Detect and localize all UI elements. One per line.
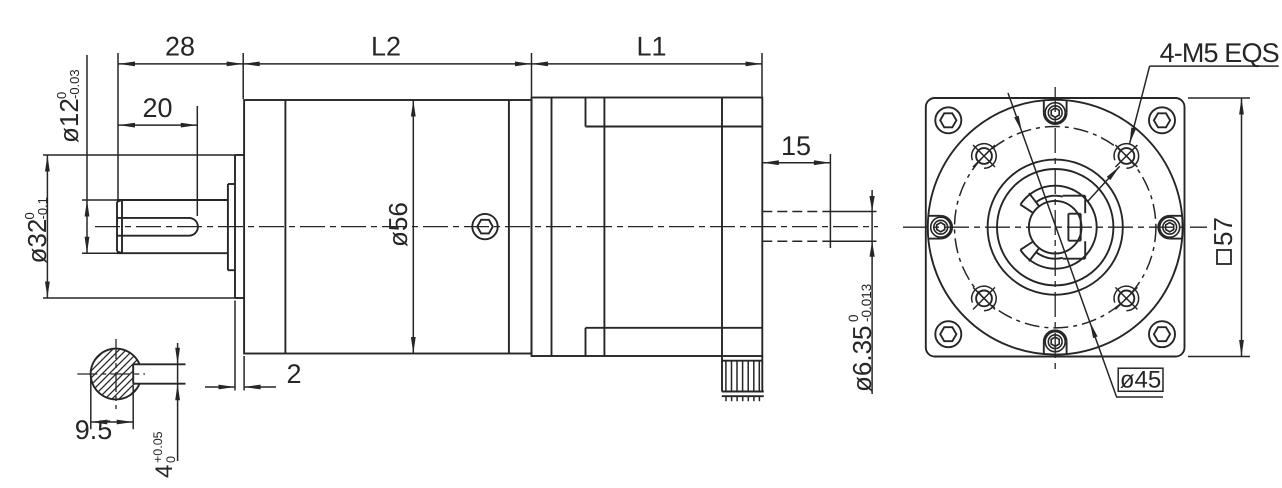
svg-text:ø12: ø12 — [54, 98, 84, 143]
svg-text:0: 0 — [164, 456, 178, 463]
svg-text:15: 15 — [781, 131, 811, 161]
svg-text:L2: L2 — [371, 32, 401, 62]
svg-text:57: 57 — [1208, 217, 1238, 246]
svg-text:4: 4 — [151, 465, 178, 478]
svg-text:ø6.35: ø6.35 — [847, 326, 877, 393]
svg-text:-0.03: -0.03 — [67, 69, 82, 99]
svg-text:28: 28 — [165, 32, 195, 62]
svg-text:4-M5 EQS: 4-M5 EQS — [1160, 38, 1280, 68]
svg-text:ø45: ø45 — [1120, 367, 1161, 394]
svg-text:L1: L1 — [636, 32, 666, 62]
svg-text:ø32: ø32 — [22, 219, 52, 264]
svg-text:+0.05: +0.05 — [151, 431, 165, 463]
svg-text:ø56: ø56 — [383, 202, 413, 247]
svg-text:-0.1: -0.1 — [35, 197, 50, 219]
svg-text:9.5: 9.5 — [75, 415, 113, 445]
svg-text:2: 2 — [286, 359, 301, 389]
svg-text:20: 20 — [142, 93, 172, 123]
svg-text:-0.013: -0.013 — [859, 284, 874, 322]
